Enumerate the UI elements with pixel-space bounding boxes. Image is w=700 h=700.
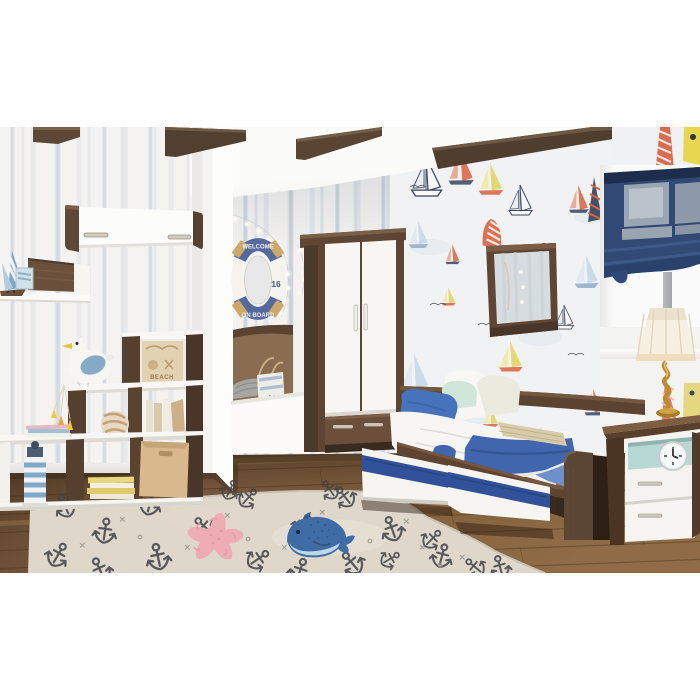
svg-text:BEACH: BEACH [150,375,174,381]
svg-text:16: 16 [271,279,281,289]
svg-text:ON BOARD: ON BOARD [242,313,275,319]
svg-text:WELCOME: WELCOME [242,245,273,251]
